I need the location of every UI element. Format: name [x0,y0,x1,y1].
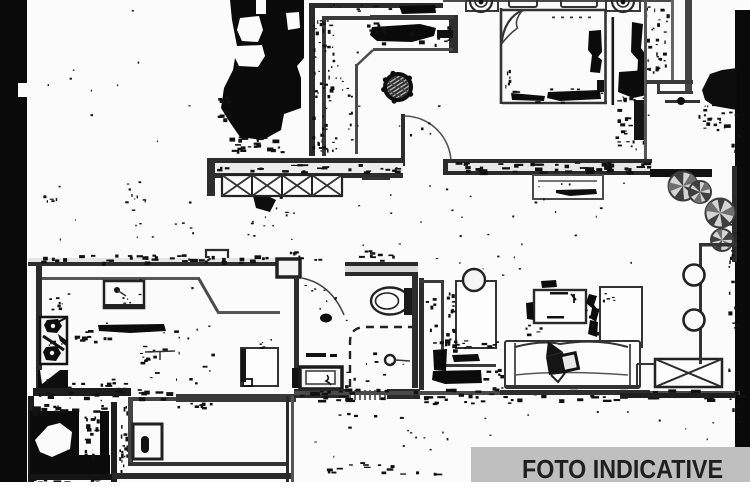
svg-text:FOTO INDICATIVE: FOTO INDICATIVE [522,456,723,482]
